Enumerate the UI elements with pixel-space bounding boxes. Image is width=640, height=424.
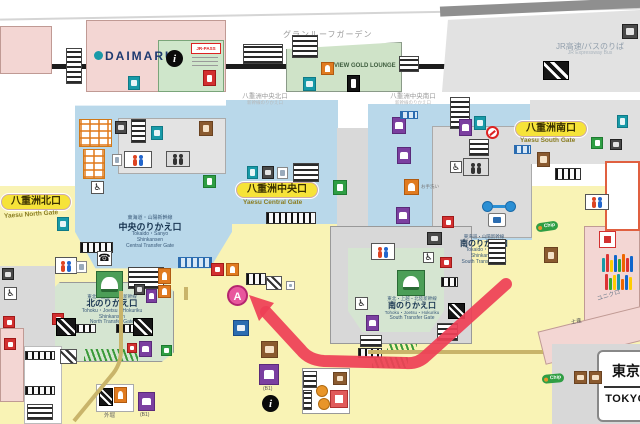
teal-icon bbox=[303, 77, 316, 91]
comb-icon bbox=[555, 168, 581, 180]
escw-icon bbox=[60, 349, 77, 364]
toilet-icon bbox=[371, 243, 395, 260]
green-icon bbox=[333, 180, 347, 195]
gate-pill-yaesu-central: 八重洲中央口 bbox=[236, 182, 318, 198]
south-tohoku-name: 南のりかえ口 bbox=[372, 301, 452, 310]
teal-icon bbox=[474, 116, 486, 130]
central-south-gate-sub: 新幹線のりかえ口 bbox=[370, 100, 456, 105]
dark-icon bbox=[610, 139, 622, 150]
south-tohoku-en2: South Transfer Gate bbox=[372, 316, 452, 322]
stairs-icon bbox=[293, 163, 319, 182]
esc-icon bbox=[56, 318, 76, 336]
circleO-icon bbox=[316, 385, 328, 397]
red-icon bbox=[127, 343, 137, 353]
green-icon bbox=[161, 345, 172, 356]
dark-icon bbox=[427, 232, 442, 245]
circleO-icon bbox=[318, 398, 330, 410]
comb-icon bbox=[266, 212, 316, 224]
brown-icon bbox=[261, 341, 278, 358]
comb-icon bbox=[246, 273, 266, 285]
bus-terminal-label: JR高速/バスのりば JR Expressway Bus bbox=[540, 42, 640, 57]
phone-icon: ☎ bbox=[97, 251, 112, 266]
station-name-sign: 東京 TOKYO bbox=[597, 350, 640, 422]
wheel-icon: ♿ bbox=[91, 181, 104, 194]
orange-icon bbox=[226, 263, 239, 276]
brown-icon bbox=[537, 152, 550, 167]
blue-icon bbox=[233, 320, 249, 336]
noentry-icon bbox=[486, 126, 499, 139]
esc-icon bbox=[543, 61, 569, 80]
teal-icon bbox=[247, 166, 258, 179]
purple-icon bbox=[146, 289, 157, 303]
combblue-icon bbox=[400, 111, 418, 119]
combgreen-icon bbox=[372, 357, 408, 368]
elev-icon bbox=[166, 151, 190, 167]
brown-icon bbox=[544, 247, 558, 263]
white-icon bbox=[286, 281, 295, 290]
wheel-icon: ♿ bbox=[450, 161, 462, 173]
orange-icon bbox=[114, 387, 127, 403]
stairs-icon bbox=[292, 35, 318, 58]
otearai-label: お手洗い bbox=[421, 184, 439, 189]
white-icon bbox=[112, 154, 122, 166]
white-icon bbox=[76, 261, 87, 273]
teal-icon bbox=[128, 76, 140, 90]
stairs-icon bbox=[66, 48, 82, 84]
station-map: グランルーフガーデン VIEW GOLD LOUNGE DAIMARU JR-P… bbox=[0, 0, 640, 424]
red-icon bbox=[442, 216, 454, 228]
lockers-icon bbox=[79, 119, 112, 147]
comb-icon bbox=[25, 386, 55, 395]
lockers-icon bbox=[83, 149, 105, 179]
south-tokaido-en3: South Transfer Gate bbox=[444, 260, 524, 266]
toilet-icon bbox=[124, 151, 152, 168]
red-icon bbox=[440, 257, 452, 268]
dark-icon bbox=[134, 284, 145, 295]
stairs-icon bbox=[469, 139, 489, 156]
sotobori-label: 外堀 bbox=[104, 413, 115, 419]
combblue-icon bbox=[178, 257, 212, 268]
stairs-icon bbox=[488, 239, 506, 265]
red-icon bbox=[211, 263, 224, 276]
comb-icon bbox=[25, 351, 55, 360]
dark-icon bbox=[622, 24, 638, 39]
gate-pill-yaesu-north: 八重洲北口 bbox=[1, 194, 71, 210]
combgreen-icon bbox=[387, 344, 417, 353]
daimaru-peacock-icon bbox=[94, 51, 103, 60]
purple-icon bbox=[139, 341, 152, 357]
station-name-en: TOKYO bbox=[599, 393, 640, 405]
zone-building-topleft bbox=[0, 26, 52, 74]
gate-pill-yaesu-south: 八重洲南口 bbox=[515, 121, 587, 137]
daimaru-logo: DAIMARU bbox=[94, 50, 176, 64]
stairs-icon bbox=[27, 404, 53, 420]
brown-icon bbox=[333, 372, 347, 385]
link-icon bbox=[482, 200, 516, 213]
central-north-gate-sub: 新幹線のりかえ口 bbox=[222, 100, 308, 105]
purple-icon bbox=[138, 392, 155, 411]
b1-label-subway-center: (B1) bbox=[263, 387, 272, 393]
b1-label-subway-left: (B1) bbox=[140, 413, 149, 419]
red-icon bbox=[4, 338, 16, 350]
shop-display-icon-2 bbox=[605, 274, 632, 290]
dark-icon bbox=[115, 121, 127, 134]
stairs-icon bbox=[303, 390, 312, 410]
esc-icon bbox=[99, 388, 113, 406]
dark-icon bbox=[2, 268, 14, 280]
jr-pass-sign: JR-PASS bbox=[191, 43, 221, 54]
redbox-icon bbox=[330, 390, 348, 408]
redsq-icon bbox=[599, 231, 616, 248]
green-icon bbox=[591, 137, 603, 149]
orange-icon bbox=[404, 179, 419, 195]
black-icon bbox=[347, 75, 360, 92]
station-sign-divider bbox=[604, 386, 640, 388]
esc-icon bbox=[133, 318, 153, 336]
zone-redframe-shop bbox=[605, 161, 640, 231]
purple-icon bbox=[397, 147, 411, 164]
south-transfer-tokaido-label: 東海道・山陽新幹線 南のりかえ口 Tokaido・Sanyo Shinkanse… bbox=[444, 234, 524, 266]
stairs-icon bbox=[131, 119, 146, 143]
wheel-icon: ♿ bbox=[4, 287, 17, 300]
purple-icon bbox=[259, 364, 279, 385]
wheel-icon: ♿ bbox=[355, 297, 368, 310]
train-icon bbox=[397, 270, 425, 296]
red-icon bbox=[3, 316, 15, 328]
toilet-icon bbox=[585, 194, 609, 210]
stairs-icon bbox=[399, 56, 419, 72]
stairs-icon bbox=[437, 323, 458, 341]
teal-icon bbox=[151, 126, 163, 140]
teal-icon bbox=[617, 115, 628, 128]
daimaru-text: DAIMARU bbox=[105, 49, 176, 63]
station-name-jp: 東京 bbox=[599, 361, 640, 381]
purple-icon bbox=[366, 315, 379, 331]
brown-icon bbox=[574, 371, 587, 384]
purple-icon bbox=[396, 207, 410, 224]
comb-icon bbox=[441, 277, 458, 287]
orange-icon bbox=[158, 285, 171, 298]
combblue-icon bbox=[514, 145, 531, 154]
red-icon bbox=[203, 70, 216, 86]
stairs-icon bbox=[360, 335, 382, 347]
info-icon: i bbox=[262, 395, 279, 412]
brown-icon bbox=[199, 121, 213, 136]
stairs-icon bbox=[303, 371, 317, 388]
orange-icon bbox=[321, 62, 334, 75]
toilet-icon bbox=[55, 257, 77, 274]
flag-icon bbox=[488, 213, 506, 227]
stairs-icon bbox=[243, 44, 283, 64]
gate-en-yaesu-south: Yaesu South Gate bbox=[520, 137, 575, 144]
wheel-icon: ♿ bbox=[423, 252, 434, 263]
white-icon bbox=[277, 167, 288, 179]
central-south-gate-label: 八重洲中央南口 新幹線のりかえ口 bbox=[370, 93, 456, 106]
bus-terminal-label-en: JR Expressway Bus bbox=[540, 51, 640, 57]
orange-icon bbox=[158, 268, 171, 284]
info-icon: i bbox=[166, 50, 183, 67]
comb-icon bbox=[76, 324, 96, 333]
jrpass-info-lines bbox=[192, 56, 218, 66]
brown-icon bbox=[589, 371, 602, 384]
escw-icon bbox=[266, 276, 282, 290]
central-north-gate-label: 八重洲中央北口 新幹線のりかえ口 bbox=[222, 93, 308, 106]
shop-display-icon bbox=[602, 254, 633, 272]
purple-icon bbox=[459, 119, 472, 136]
esc-icon bbox=[448, 303, 465, 319]
purple-icon bbox=[392, 117, 406, 134]
gate-en-yaesu-central: Yaesu Central Gate bbox=[243, 199, 302, 206]
comb-icon bbox=[116, 324, 134, 333]
view-gold-lounge-label: VIEW GOLD LOUNGE bbox=[334, 63, 396, 70]
elev-icon bbox=[463, 158, 489, 176]
south-transfer-tohoku-label: 東北・上越・北陸新幹線 南のりかえ口 Tohoku・Joetsu・Hokurik… bbox=[372, 296, 452, 321]
train-icon bbox=[96, 271, 123, 298]
green-icon bbox=[203, 175, 216, 188]
point-a-marker: A bbox=[227, 285, 248, 306]
dark-icon bbox=[262, 166, 274, 179]
teal-icon bbox=[57, 217, 69, 231]
